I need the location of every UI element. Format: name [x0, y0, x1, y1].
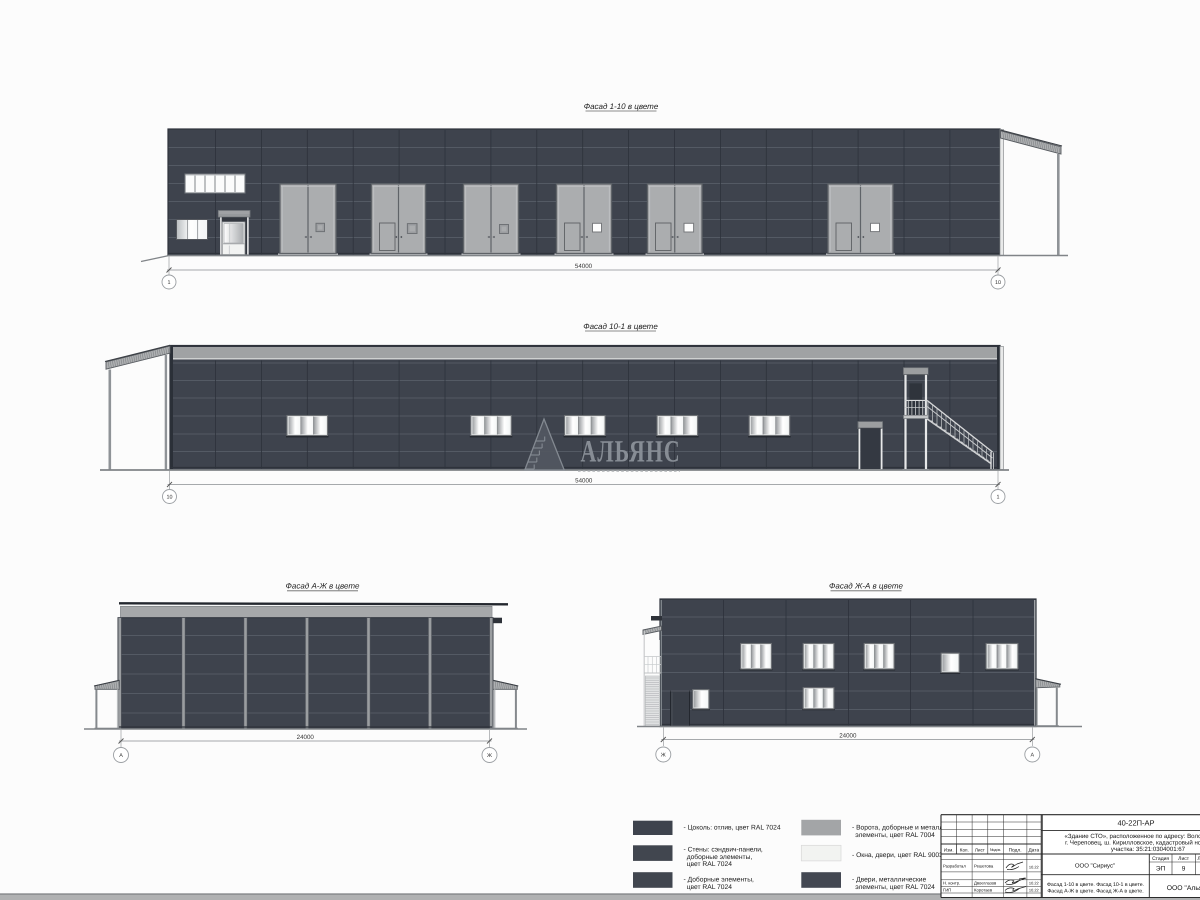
svg-text:доборные элементы,: доборные элементы, — [687, 854, 753, 861]
svg-text:Фасад 1-10 в цвете. Фасад 10-1: Фасад 1-10 в цвете. Фасад 10-1 в цвете. — [1047, 882, 1144, 888]
svg-text:Н. контр.: Н. контр. — [943, 880, 960, 885]
svg-text:Коротаев: Коротаев — [974, 887, 993, 892]
svg-text:А: А — [1030, 752, 1034, 758]
svg-text:10: 10 — [167, 494, 173, 500]
svg-text:цвет RAL 7024: цвет RAL 7024 — [687, 861, 733, 868]
svg-text:- Доборные элементы,: - Доборные элементы, — [684, 877, 755, 884]
svg-text:- Двери, металлические: - Двери, металлические — [852, 877, 927, 884]
svg-text:Фасад 1-10 в цвете: Фасад 1-10 в цвете — [584, 102, 659, 111]
svg-text:- Окна, двери, цвет RAL 9003: - Окна, двери, цвет RAL 9003 — [852, 852, 943, 859]
svg-text:ООО "Сириус": ООО "Сириус" — [1075, 863, 1115, 870]
svg-text:А: А — [119, 753, 123, 759]
svg-text:24000: 24000 — [297, 734, 315, 741]
svg-text:Фасад 10-1 в цвете: Фасад 10-1 в цвете — [583, 322, 658, 331]
svg-text:Подл.: Подл. — [1009, 848, 1022, 854]
svg-text:Решетова: Решетова — [974, 863, 994, 868]
svg-text:9: 9 — [1182, 866, 1186, 873]
svg-text:40-22П-АР: 40-22П-АР — [1117, 818, 1154, 827]
svg-text:Фасад Ж-А в цвете: Фасад Ж-А в цвете — [829, 582, 903, 591]
svg-text:элементы, цвет RAL 7004: элементы, цвет RAL 7004 — [855, 832, 935, 839]
svg-text:элементы, цвет RAL 7024: элементы, цвет RAL 7024 — [855, 884, 935, 891]
svg-text:1: 1 — [997, 494, 1000, 500]
svg-text:Изм.: Изм. — [944, 848, 954, 853]
svg-text:10: 10 — [995, 280, 1001, 286]
svg-text:24000: 24000 — [839, 732, 857, 739]
svg-text:Фасад А-Ж в цвете: Фасад А-Ж в цвете — [286, 582, 360, 591]
svg-text:ГИП: ГИП — [943, 887, 951, 892]
svg-text:ЭП: ЭП — [1156, 866, 1166, 873]
svg-text:- Стены: сэндвич-панели,: - Стены: сэндвич-панели, — [684, 847, 763, 854]
svg-text:54000: 54000 — [575, 477, 593, 484]
svg-text:Лист: Лист — [1178, 856, 1190, 862]
svg-text:10.22: 10.22 — [1029, 880, 1039, 885]
svg-text:10.22: 10.22 — [1029, 864, 1039, 869]
svg-text:АЛЬЯНС: АЛЬЯНС — [581, 434, 681, 469]
svg-text:10.22: 10.22 — [1029, 887, 1039, 892]
svg-text:Дата: Дата — [1028, 848, 1039, 854]
svg-text:- Ворота, доборные и металл.: - Ворота, доборные и металл. — [852, 825, 945, 832]
svg-text:Ж: Ж — [661, 752, 666, 758]
svg-text:- Цоколь: отлив, цвет RAL 7024: - Цоколь: отлив, цвет RAL 7024 — [684, 825, 781, 832]
svg-text:54000: 54000 — [575, 263, 593, 270]
svg-text:Лист: Лист — [975, 848, 986, 853]
svg-text:Двоеглазов: Двоеглазов — [974, 880, 997, 885]
svg-text:цвет RAL 7024: цвет RAL 7024 — [687, 884, 733, 891]
svg-text:Стадия: Стадия — [1152, 856, 1169, 862]
svg-text:Разработал: Разработал — [943, 863, 966, 868]
svg-text:Коп.: Коп. — [960, 848, 969, 853]
svg-text:1: 1 — [168, 280, 171, 286]
svg-text:Фасад А-Ж в цвете. Фасад Ж-А в: Фасад А-Ж в цвете. Фасад Ж-А в цвете. — [1047, 889, 1143, 895]
svg-text:ООО "Алья: ООО "Алья — [1167, 885, 1200, 892]
svg-text:№док.: №док. — [990, 847, 1001, 852]
svg-text:участка: 35:21:0304001:67: участка: 35:21:0304001:67 — [1111, 846, 1186, 853]
svg-text:Ж: Ж — [487, 753, 492, 759]
